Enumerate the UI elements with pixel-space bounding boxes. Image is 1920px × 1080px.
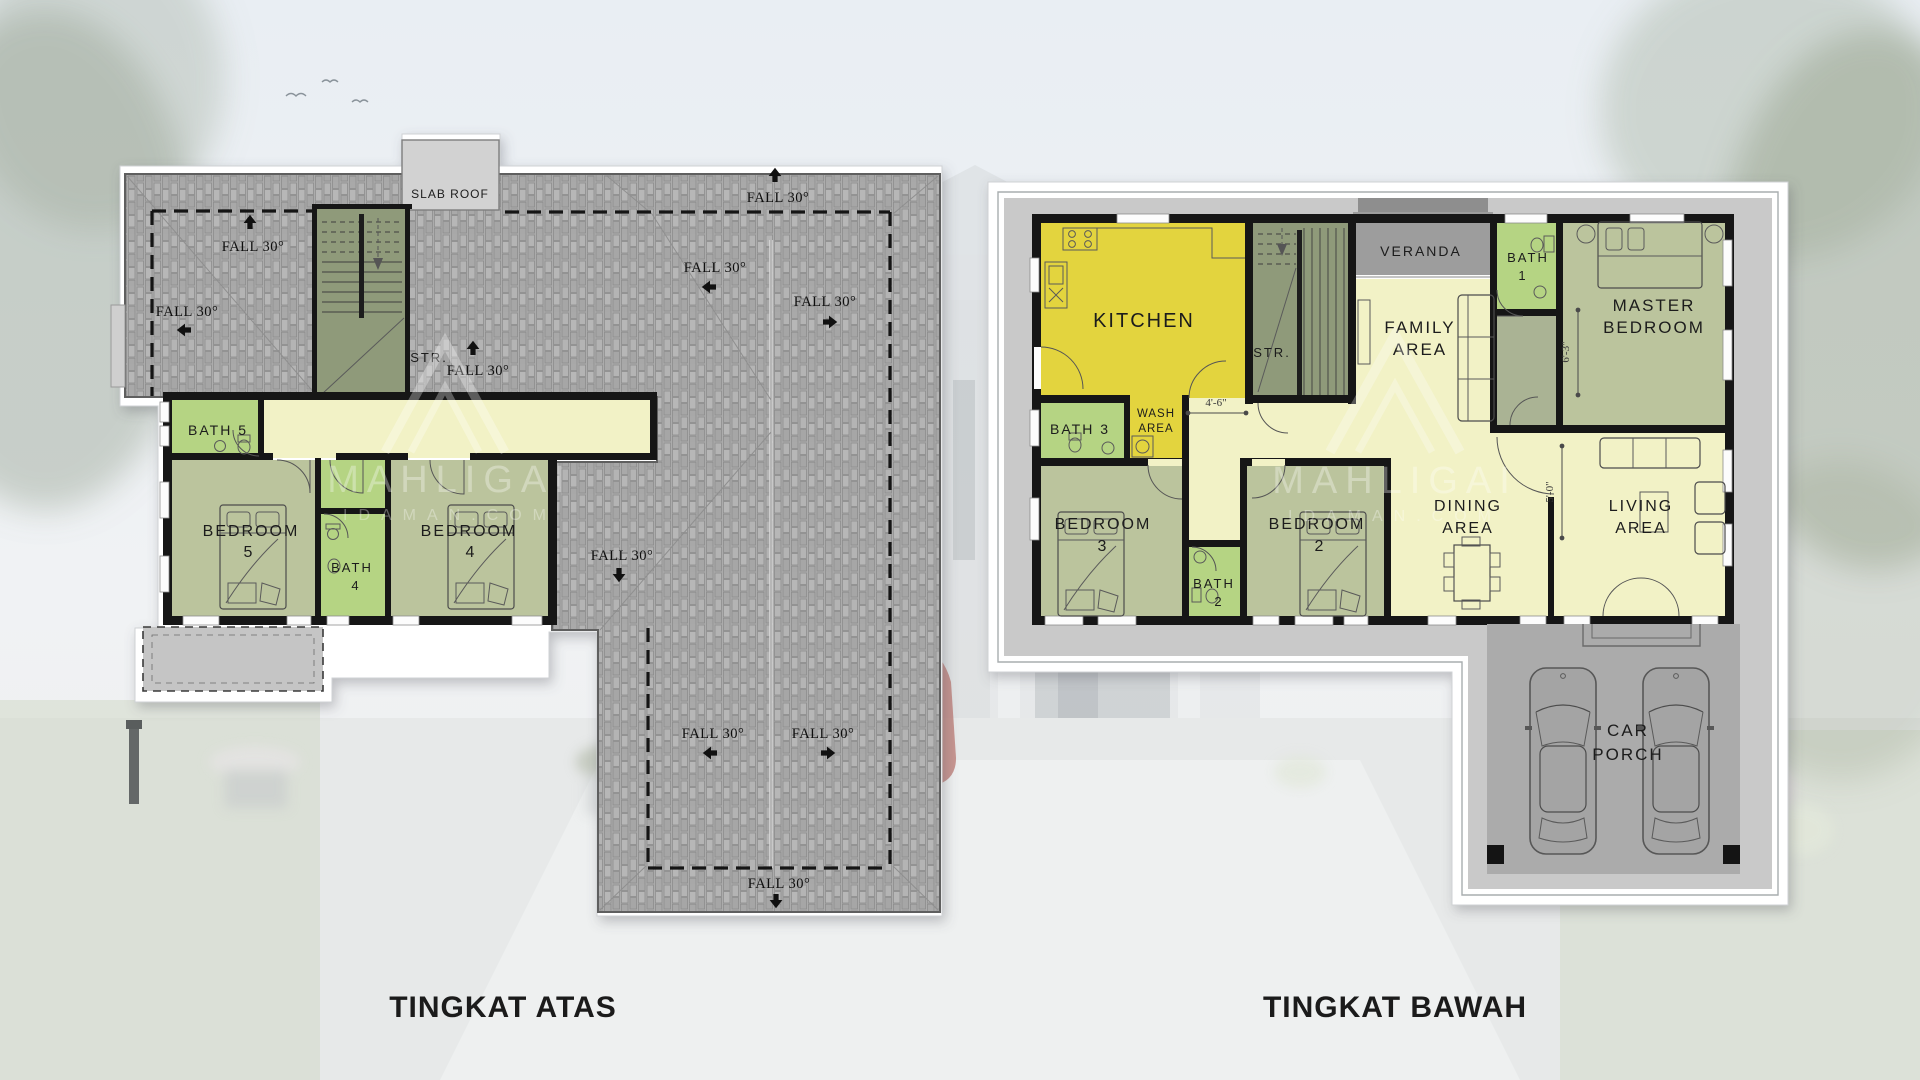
fall-label: FALL 30° — [792, 726, 855, 742]
label-veranda: VERANDA — [1380, 243, 1462, 259]
car-icon — [1525, 668, 1601, 854]
svg-text:MAHLIGAI: MAHLIGAI — [327, 459, 573, 501]
room-bedroom-3 — [1040, 462, 1186, 620]
label-living-1: LIVING — [1609, 498, 1673, 515]
label-kitchen: KITCHEN — [1093, 310, 1195, 332]
fall-label: FALL 30° — [794, 294, 857, 310]
plan-title-upper: TINGKAT ATAS — [389, 991, 617, 1024]
label-bath-2-num: 2 — [1214, 594, 1223, 609]
label-bath-3: BATH 3 — [1050, 421, 1110, 437]
fall-label: FALL 30° — [747, 190, 810, 206]
label-bath-4: BATH — [331, 560, 373, 575]
svg-text:5'-0": 5'-0" — [1544, 481, 1556, 502]
label-bath-1-num: 1 — [1518, 268, 1527, 283]
label-bedroom-4: BEDROOM — [421, 523, 518, 540]
label-bath-4-num: 4 — [351, 578, 360, 593]
label-bedroom-3: BEDROOM — [1055, 516, 1152, 533]
label-bedroom-2-num: 2 — [1315, 538, 1326, 555]
svg-text:MAHLIGAI: MAHLIGAI — [1272, 460, 1518, 502]
label-bath-2: BATH — [1193, 576, 1235, 591]
staircase-upper — [316, 208, 408, 398]
svg-text:4'-6": 4'-6" — [1205, 397, 1226, 409]
room-utility — [1497, 311, 1559, 428]
label-bedroom-5: BEDROOM — [203, 523, 300, 540]
label-wash-1: WASH — [1137, 408, 1175, 420]
slab-roof-label: SLAB ROOF — [411, 187, 489, 201]
label-bath-1: BATH — [1507, 250, 1549, 265]
fall-label: FALL 30° — [156, 304, 219, 320]
label-bedroom-4-num: 4 — [466, 544, 477, 561]
label-living-2: AREA — [1615, 520, 1667, 537]
staircase-lower — [1253, 222, 1348, 402]
label-master-2: BEDROOM — [1603, 318, 1705, 337]
vestibule-lower — [1186, 462, 1244, 547]
room-bedroom-5 — [170, 460, 318, 620]
svg-text:IDAMAN.COM: IDAMAN.COM — [1288, 508, 1502, 525]
svg-text:6'-3": 6'-3" — [1560, 341, 1572, 362]
label-car-porch-2: PORCH — [1592, 745, 1663, 764]
fall-label: FALL 30° — [222, 239, 285, 255]
label-bedroom-5-num: 5 — [244, 544, 255, 561]
label-wash-2: AREA — [1138, 423, 1173, 435]
terrace-upper — [143, 627, 323, 691]
side-ledge — [111, 305, 125, 387]
fall-label: FALL 30° — [682, 726, 745, 742]
fall-label: FALL 30° — [684, 260, 747, 276]
svg-text:IDAMAN.COM: IDAMAN.COM — [343, 507, 557, 524]
label-str-lower: STR. — [1253, 345, 1291, 360]
veranda-canopy-strip — [1358, 198, 1488, 212]
fall-label: FALL 30° — [748, 876, 811, 892]
plan-title-lower: TINGKAT BAWAH — [1263, 991, 1527, 1024]
label-car-porch-1: CAR — [1607, 721, 1649, 740]
floor-plan-poster: SLAB ROOF — [0, 0, 1920, 1080]
fall-label: FALL 30° — [591, 548, 654, 564]
label-master-1: MASTER — [1613, 296, 1696, 315]
label-bath-5: BATH 5 — [188, 422, 248, 438]
car-porch: CAR PORCH — [1487, 624, 1740, 874]
label-bedroom-3-num: 3 — [1098, 538, 1109, 555]
